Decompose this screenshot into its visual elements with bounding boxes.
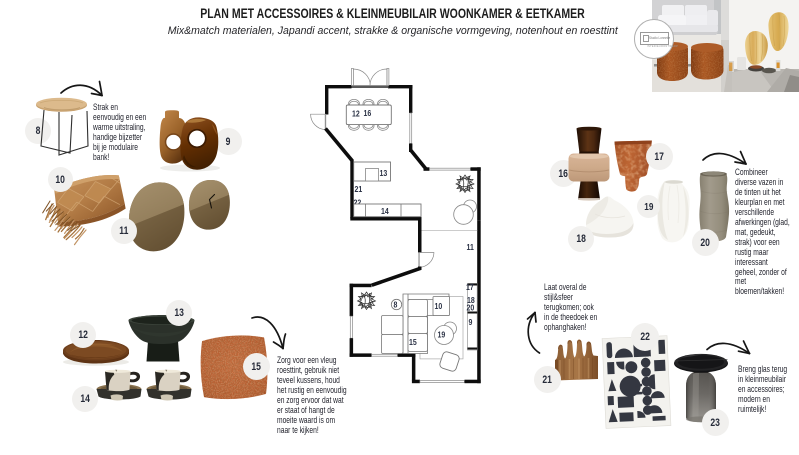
svg-text:11: 11 <box>467 242 475 252</box>
svg-text:21: 21 <box>355 184 363 194</box>
svg-text:12: 12 <box>352 109 360 119</box>
svg-text:10: 10 <box>435 301 443 311</box>
svg-text:8: 8 <box>394 300 398 310</box>
svg-text:19: 19 <box>438 330 446 340</box>
svg-text:14: 14 <box>381 206 389 216</box>
svg-text:13: 13 <box>380 168 388 178</box>
svg-text:16: 16 <box>364 108 372 118</box>
svg-text:15: 15 <box>409 337 417 347</box>
svg-text:9: 9 <box>469 317 473 327</box>
svg-text:17: 17 <box>466 282 474 292</box>
svg-text:20: 20 <box>467 303 475 313</box>
